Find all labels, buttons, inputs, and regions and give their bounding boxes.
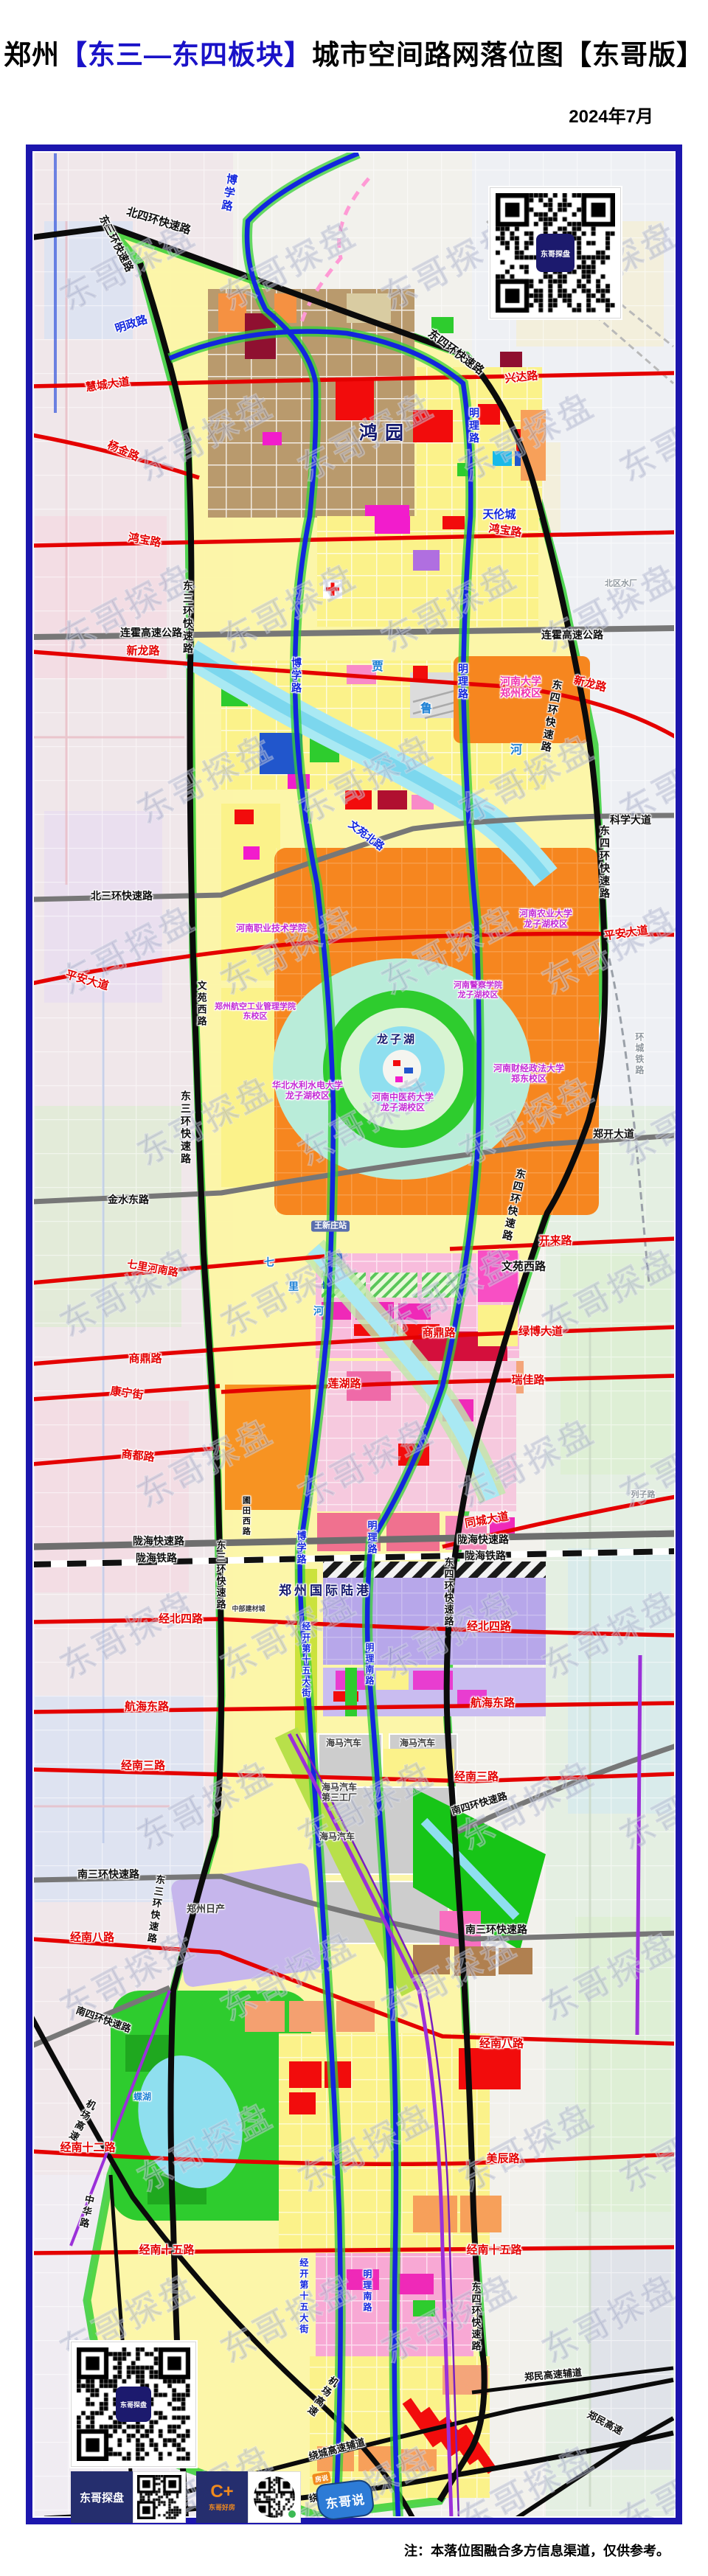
badge-dongge-shuo-label: 东哥说 bbox=[315, 2479, 375, 2522]
badge-haofang-label: 东哥好房 bbox=[209, 2502, 235, 2512]
qr-code-bottom: 东哥探盘 bbox=[71, 2342, 196, 2467]
badge-haofang-qr bbox=[248, 2471, 301, 2523]
qr-center-logo: 东哥探盘 bbox=[116, 2387, 151, 2422]
map-canvas bbox=[0, 0, 708, 2576]
badge-row: 东哥探盘 C+ 东哥好房 房说 东哥说 bbox=[71, 2471, 375, 2523]
badge-haofang-logo: C+ 东哥好房 bbox=[196, 2471, 248, 2523]
qr-center-logo: 东哥探盘 bbox=[536, 234, 575, 272]
badge-dongge-shuo: 房说 东哥说 bbox=[311, 2471, 375, 2523]
badge-tanpan-qr bbox=[133, 2471, 186, 2523]
qr-code-top: 东哥探盘 bbox=[490, 187, 621, 318]
badge-tanpan-label: 东哥探盘 bbox=[71, 2471, 133, 2523]
badge-tanpan: 东哥探盘 bbox=[71, 2471, 186, 2523]
badge-haofang: C+ 东哥好房 bbox=[196, 2471, 301, 2523]
c-plus-logo-icon: C+ bbox=[210, 2483, 233, 2501]
wechat-dot-icon bbox=[288, 2510, 296, 2518]
poster: 郑州【东三—东四板块】城市空间路网落位图【东哥版】 2024年7月 东哥探盘东哥… bbox=[0, 0, 708, 2576]
disclaimer-note: 注：本落位图融合多方信息渠道，仅供参考。 bbox=[404, 2541, 670, 2560]
